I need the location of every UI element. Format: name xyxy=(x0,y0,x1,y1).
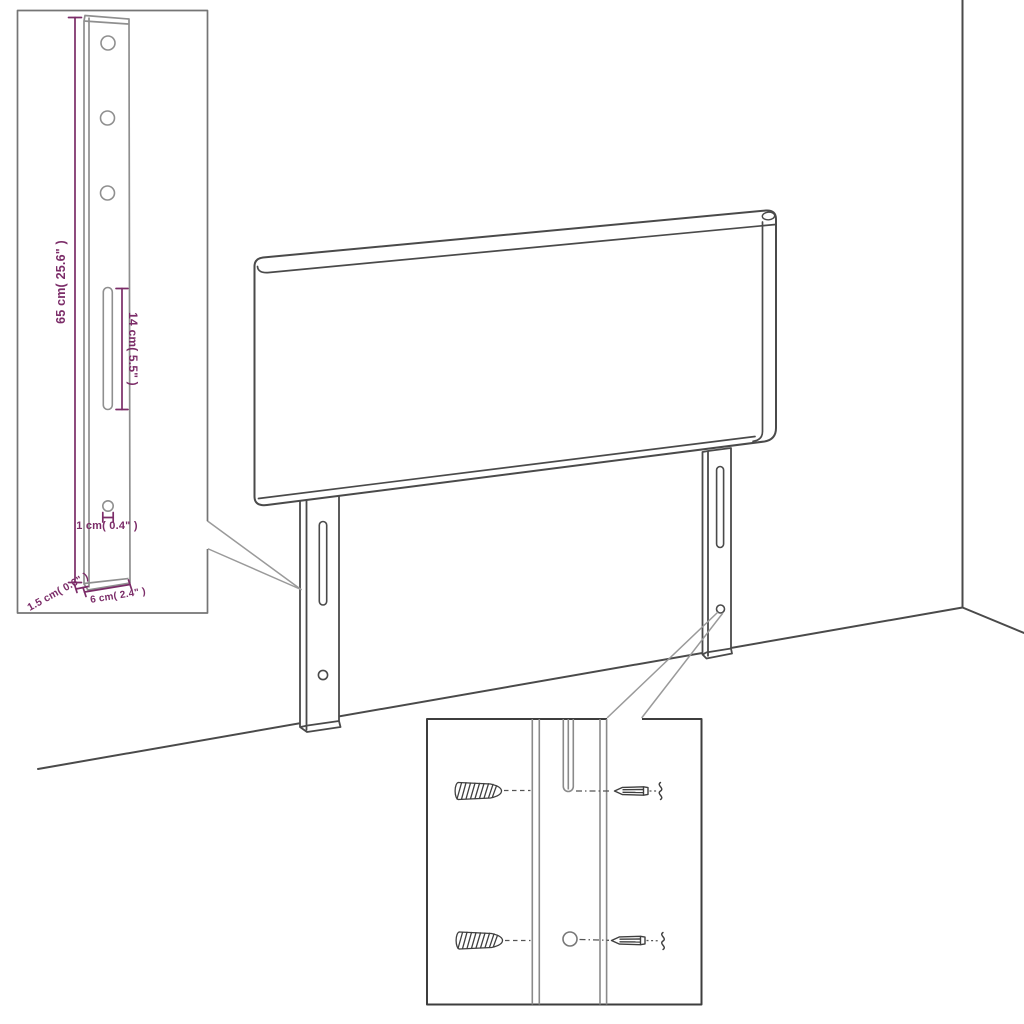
leg-front-view xyxy=(84,16,130,591)
headboard-left-leg xyxy=(300,469,341,732)
left-leg-slot xyxy=(319,522,326,606)
headboard-panel xyxy=(255,210,777,505)
diagram-canvas: 65 cm( 25.6" ) 14 cm( 5.5" ) 1 cm( 0.4" … xyxy=(0,0,1024,1024)
callout-right-hole-left xyxy=(608,613,718,718)
callout-lines xyxy=(208,521,723,718)
left-leg-hole xyxy=(318,670,327,679)
dimension-label-slot-length: 14 cm( 5.5" ) xyxy=(126,312,140,386)
headboard-panel-face xyxy=(255,210,777,505)
diagram-lineart xyxy=(0,0,1024,1024)
dimension-label-hole-diameter: 1 cm( 0.4" ) xyxy=(76,520,137,532)
inset-mounting-border xyxy=(427,719,702,1005)
floor-line-right xyxy=(963,608,1024,634)
callout-right-hole-right xyxy=(642,614,723,718)
dimension-label-leg-height: 65 cm( 25.6" ) xyxy=(54,240,68,324)
inset-mounting-detail xyxy=(427,719,702,1005)
right-leg-slot xyxy=(717,467,724,548)
headboard-right-leg xyxy=(703,448,733,659)
